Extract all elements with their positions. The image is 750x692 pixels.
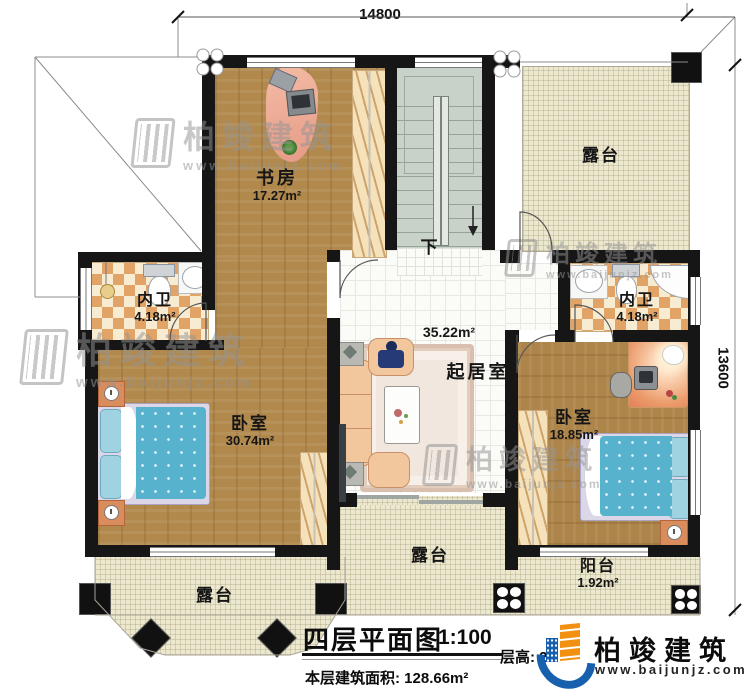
wall <box>78 252 215 262</box>
floor-height-label: 层高: <box>500 649 535 666</box>
plan-title: 四层平面图 <box>303 620 443 657</box>
dimension-top: 14800 <box>356 6 404 23</box>
room-label-terrace-mid: 露台 <box>411 546 449 566</box>
title-underline-thin <box>302 659 502 660</box>
title-underline <box>302 653 502 656</box>
window <box>247 57 355 68</box>
window <box>415 57 482 68</box>
wall <box>85 348 98 557</box>
room-label-terrace-bay: 露台 <box>196 586 234 606</box>
stair-rail <box>433 96 449 246</box>
bedroom-right-monitor <box>634 366 658 390</box>
room-label-bedroom-right: 卧室 18.85m² <box>550 408 598 442</box>
nightstand-clock <box>98 381 125 407</box>
wall <box>555 330 575 342</box>
nightstand-clock <box>98 500 125 526</box>
column <box>671 52 702 83</box>
brand-logo-icon <box>536 620 592 684</box>
bed-left-pillow <box>100 455 122 499</box>
hall-floor <box>505 263 558 330</box>
room-label-living: 起居室 <box>447 362 510 383</box>
bed-right-mattress <box>600 436 672 516</box>
tv-screen <box>339 424 346 502</box>
study-closet <box>352 70 387 258</box>
stair-landing-tile <box>397 248 482 276</box>
column <box>79 583 111 615</box>
wall <box>613 330 700 342</box>
logo-tower <box>546 638 558 662</box>
room-label-bedroom-left: 卧室 30.74m² <box>226 414 274 448</box>
bedroom-right-closet <box>518 410 548 546</box>
wall <box>78 340 224 350</box>
wall <box>482 55 495 250</box>
room-label-study: 书房 17.27m² <box>253 168 301 204</box>
column <box>315 583 347 615</box>
sink-basin <box>575 269 603 293</box>
desk-chair <box>610 372 632 398</box>
bed-left-pillow <box>100 409 122 453</box>
window <box>80 268 92 330</box>
wall <box>500 250 520 263</box>
bed-left-mattress <box>136 407 206 499</box>
column <box>493 583 525 613</box>
stairs-direction-label: 下 <box>421 238 440 258</box>
floor-plan-canvas: 柏竣建筑 www.baijunjz.com 柏竣建筑 www.baijunjz.… <box>0 0 750 692</box>
living-area-label: 35.22m² <box>423 324 475 340</box>
wall <box>552 250 700 263</box>
nightstand-clock <box>660 520 688 546</box>
brand-website: www.baijunjz.com <box>595 662 747 677</box>
logo-building <box>560 623 580 661</box>
window <box>690 277 701 325</box>
wall <box>202 252 215 310</box>
dimension-right: 13600 <box>715 344 732 392</box>
wall <box>327 250 340 262</box>
armchair-bottom <box>368 452 410 488</box>
wall <box>202 55 215 258</box>
wall <box>483 493 505 507</box>
coffee-table <box>384 386 420 444</box>
study-plant-icon <box>282 140 297 155</box>
window <box>690 430 701 515</box>
watermark-logo-icon <box>19 329 69 385</box>
plan-scale: 1:100 <box>438 626 492 650</box>
watermark-logo-icon <box>130 118 175 168</box>
sofa-side-table <box>336 342 364 366</box>
wall <box>505 330 519 342</box>
room-label-bath-left: 内卫 4.18m² <box>134 292 175 325</box>
wall <box>385 55 397 250</box>
desk-lamp-icon <box>662 345 684 365</box>
study-computer-monitor <box>286 89 316 117</box>
person-body <box>378 350 404 368</box>
bedroom-left-closet <box>300 452 329 546</box>
floor-area-line: 本层建筑面积: 128.66m² <box>305 667 468 688</box>
room-label-bath-right: 内卫 4.18m² <box>616 292 657 325</box>
window <box>150 547 275 557</box>
floor-area-label: 本层建筑面积: <box>305 670 400 687</box>
wall <box>558 263 570 333</box>
window <box>540 547 648 557</box>
desk-flower-icon <box>666 390 673 397</box>
shower-head-icon <box>100 284 115 299</box>
corridor-floor <box>215 258 327 350</box>
room-label-balcony: 阳台 1.92m² <box>577 558 618 591</box>
column <box>671 585 701 614</box>
room-label-terrace-top: 露台 <box>582 146 620 166</box>
floor-area-value: 128.66m² <box>404 670 468 687</box>
